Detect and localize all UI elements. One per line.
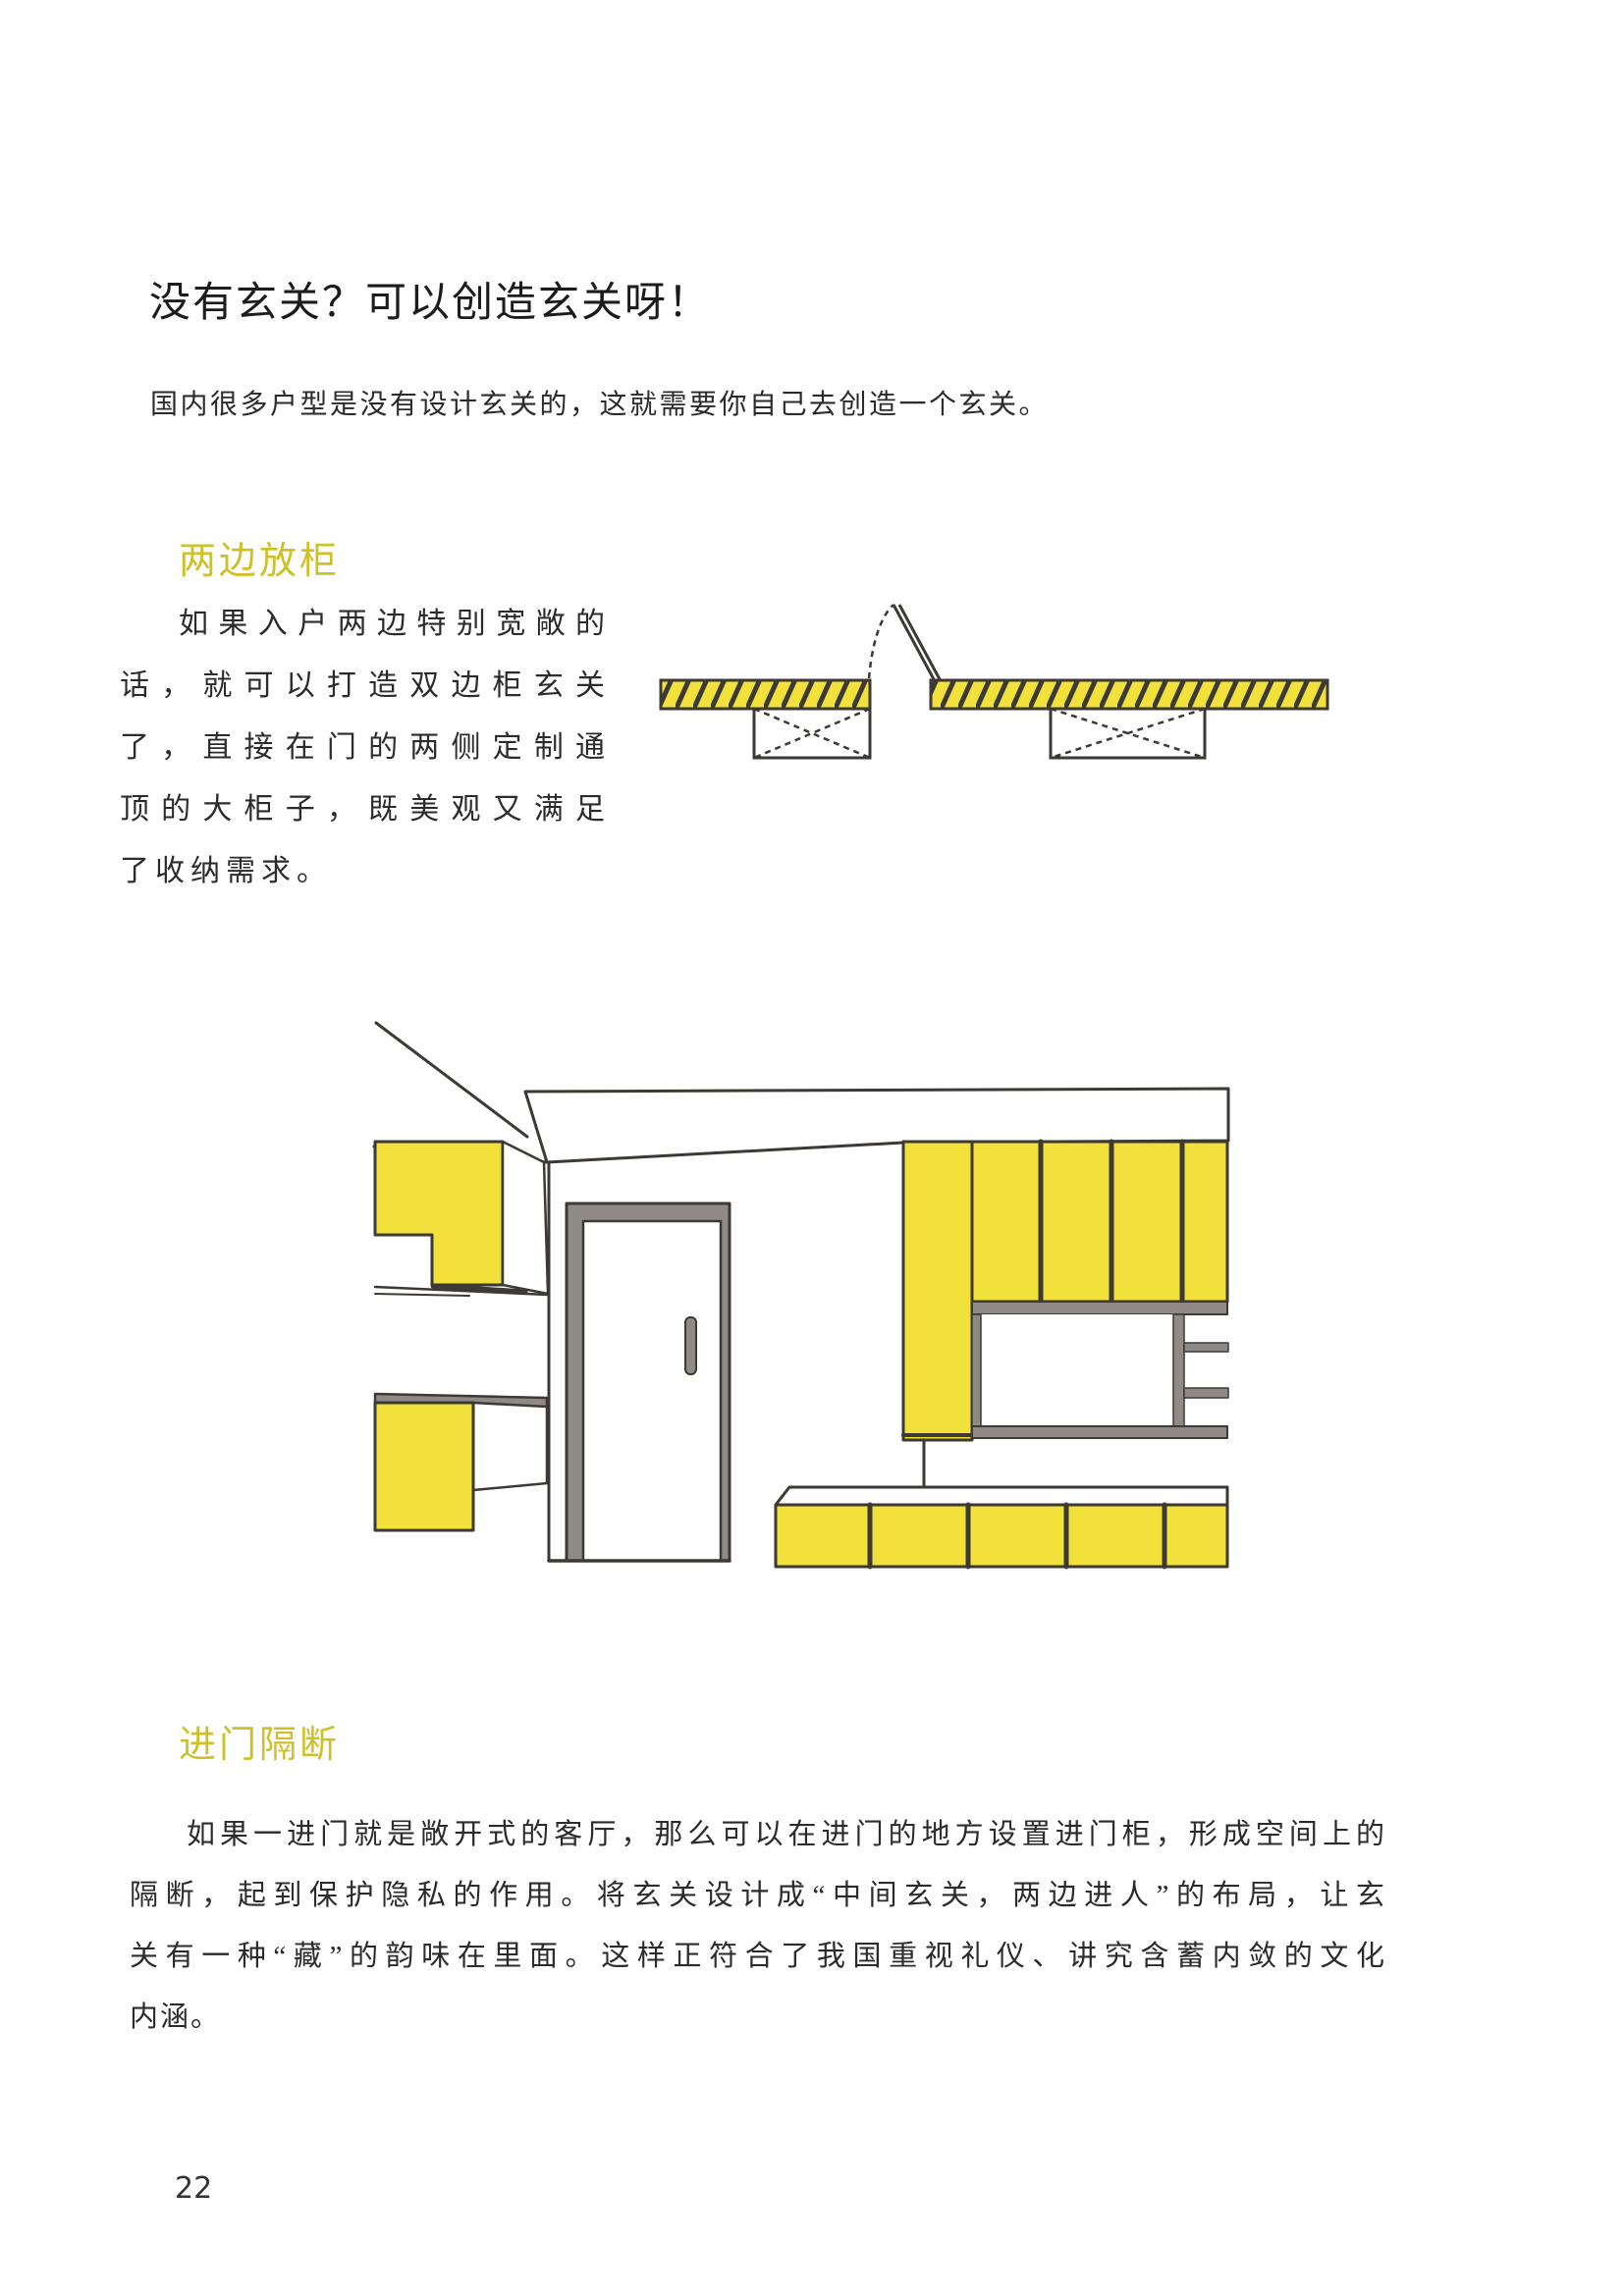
niche-top-shelf	[972, 1302, 1227, 1314]
niche-bottom-shelf	[972, 1426, 1227, 1438]
room-illustration	[368, 993, 1232, 1592]
tall-yellow-panel	[903, 1142, 972, 1440]
door-handle	[685, 1317, 696, 1374]
plan-right-wall	[931, 680, 1327, 709]
shelf-bracket	[1184, 1343, 1228, 1352]
right-wall-unit	[903, 1142, 1228, 1488]
page-title: 没有玄关？可以创造玄关呀！	[149, 269, 1033, 329]
plan-left-wall	[661, 680, 870, 709]
paragraph-line: 关有一种“藏”的韵味在里面。这样正符合了我国重视礼仪、讲究含蓄内敛的文化	[130, 1926, 1384, 1987]
intro-text: 国内很多户型是没有设计玄关的，这就需要你自己去创造一个玄关。	[150, 383, 1230, 422]
plan-left-cabinet-box	[754, 709, 870, 758]
upper-left-cabinet	[375, 1142, 548, 1296]
bench-top	[776, 1487, 1227, 1505]
ceiling-edge-line	[376, 1023, 527, 1137]
paragraph-line: 如果入户两边特别宽敞的	[120, 593, 605, 655]
upper-cabinet-doors	[972, 1142, 1227, 1302]
plan-right-cabinet-box	[1051, 709, 1205, 758]
door-swing-arc	[869, 605, 893, 678]
paragraph-line: 内涵。	[130, 1987, 1384, 2048]
lower-left-cabinet	[375, 1394, 547, 1530]
shelf-bracket	[1184, 1388, 1228, 1398]
section-heading-entry-partition: 进门隔断	[179, 1714, 571, 1768]
niche-divider	[1173, 1314, 1184, 1426]
bench-doors	[776, 1505, 1227, 1567]
paragraph-line: 如果一进门就是敞开式的客厅，那么可以在进门的地方设置进门柜，形成空间上的	[130, 1804, 1384, 1865]
page-number: 22	[175, 2171, 212, 2206]
section-heading-cabinets-both-sides: 两边放柜	[179, 530, 571, 584]
paragraph-cabinets-both-sides: 如果入户两边特别宽敞的 话，就可以打造双边柜玄关 了，直接在门的两侧定制通 顶的…	[120, 593, 605, 902]
paragraph-line: 顶的大柜子，既美观又满足	[120, 778, 605, 840]
paragraph-line: 了收纳需求。	[120, 840, 605, 902]
book-page: 没有玄关？可以创造玄关呀！ 国内很多户型是没有设计玄关的，这就需要你自己去创造一…	[0, 0, 1624, 2296]
base-bench-cabinet	[776, 1487, 1227, 1567]
entry-door	[567, 1203, 730, 1561]
paragraph-line: 了，直接在门的两侧定制通	[120, 717, 605, 778]
paragraph-entry-partition: 如果一进门就是敞开式的客厅，那么可以在进门的地方设置进门柜，形成空间上的 隔断，…	[130, 1804, 1384, 2048]
floor-plan-diagram	[658, 594, 1335, 766]
open-niche	[981, 1314, 1173, 1426]
paragraph-line: 话，就可以打造双边柜玄关	[120, 655, 605, 717]
door-leaf	[893, 605, 940, 679]
paragraph-line: 隔断，起到保护隐私的作用。将玄关设计成“中间玄关，两边进人”的布局，让玄	[130, 1865, 1384, 1926]
